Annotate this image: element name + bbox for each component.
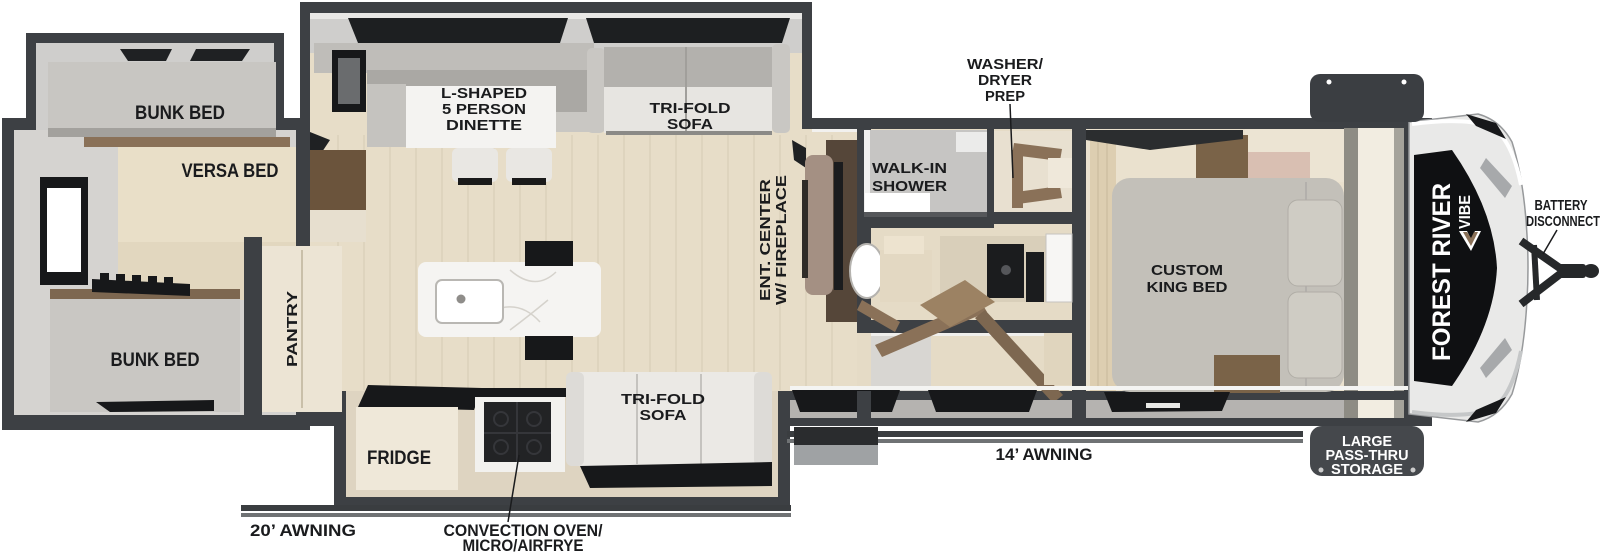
svg-text:BATTERY: BATTERY (1535, 197, 1588, 214)
svg-text:L-SHAPED: L-SHAPED (441, 85, 527, 102)
svg-text:BUNK BED: BUNK BED (111, 350, 200, 371)
svg-text:TRI-FOLD: TRI-FOLD (621, 391, 705, 408)
svg-text:WASHER/: WASHER/ (967, 56, 1044, 73)
svg-text:DISCONNECT: DISCONNECT (1526, 213, 1600, 230)
svg-text:DRYER: DRYER (978, 72, 1032, 89)
svg-text:KING BED: KING BED (1147, 279, 1228, 296)
svg-text:FOREST RIVER: FOREST RIVER (1428, 183, 1456, 361)
svg-text:TRI-FOLD: TRI-FOLD (650, 100, 731, 117)
svg-text:SOFA: SOFA (640, 407, 687, 424)
svg-text:W/ FIREPLACE: W/ FIREPLACE (773, 175, 790, 305)
svg-text:WALK-IN: WALK-IN (872, 160, 947, 177)
svg-text:BUNK BED: BUNK BED (135, 103, 225, 124)
svg-text:VIBE: VIBE (1457, 195, 1474, 229)
svg-text:5 PERSON: 5 PERSON (442, 101, 526, 118)
svg-text:14’ AWNING: 14’ AWNING (996, 445, 1093, 464)
svg-text:DINETTE: DINETTE (446, 117, 522, 134)
svg-text:PREP: PREP (985, 88, 1025, 105)
svg-text:SOFA: SOFA (667, 116, 713, 133)
svg-text:VERSA BED: VERSA BED (182, 161, 279, 182)
svg-text:FRIDGE: FRIDGE (367, 448, 431, 469)
svg-text:ENT. CENTER: ENT. CENTER (757, 179, 774, 301)
svg-text:20’ AWNING: 20’ AWNING (250, 521, 356, 540)
svg-text:PANTRY: PANTRY (284, 291, 301, 367)
svg-text:SHOWER: SHOWER (872, 178, 947, 195)
svg-text:STORAGE: STORAGE (1331, 461, 1403, 478)
svg-text:MICRO/AIRFRYE: MICRO/AIRFRYE (463, 536, 584, 552)
svg-text:CUSTOM: CUSTOM (1151, 262, 1223, 279)
